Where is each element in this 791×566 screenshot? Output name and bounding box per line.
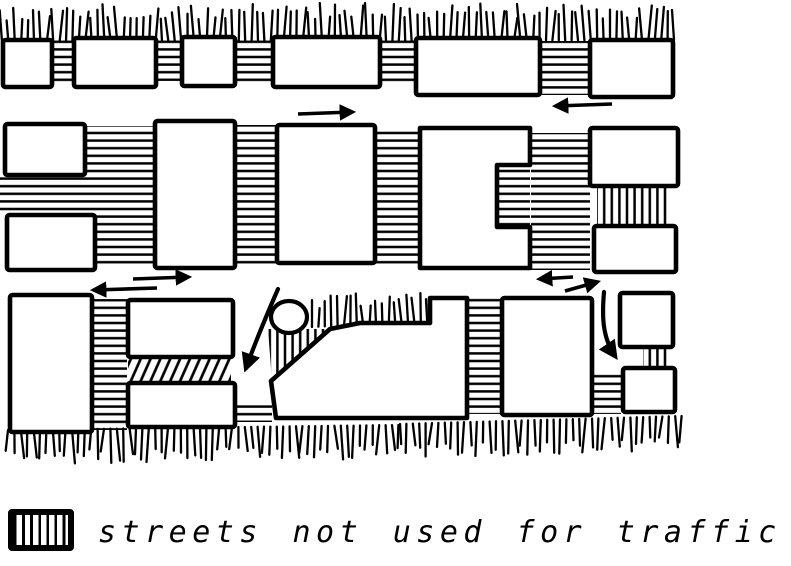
turning-traffic-arrow xyxy=(603,292,615,356)
city-block xyxy=(502,298,592,415)
hatched-street xyxy=(542,41,590,95)
hatched-street xyxy=(381,39,416,86)
hatched-street xyxy=(375,128,420,267)
hatched-street xyxy=(236,38,272,85)
city-block xyxy=(590,40,673,97)
city-block xyxy=(273,37,380,87)
hatched-street xyxy=(531,133,590,270)
city-block xyxy=(5,124,85,175)
roundabout-circle xyxy=(271,301,307,333)
traffic-direction-arrow xyxy=(540,277,573,279)
hatched-street xyxy=(53,40,74,84)
hatched-street xyxy=(85,126,155,175)
city-block xyxy=(10,295,92,432)
traffic-direction-arrow xyxy=(565,282,597,291)
traffic-direction-arrow xyxy=(556,104,612,106)
hatched-street xyxy=(597,187,667,226)
hatched-street xyxy=(95,215,155,268)
city-block xyxy=(277,125,375,263)
city-block xyxy=(182,37,235,86)
city-block xyxy=(620,293,673,347)
legend: streets not used for traffic xyxy=(8,509,782,551)
legend-swatch-hatched-street xyxy=(8,509,74,551)
hatched-street xyxy=(235,125,277,266)
hatched-street xyxy=(468,298,500,414)
city-block xyxy=(594,226,676,272)
street-edge-hatching xyxy=(400,416,682,457)
legend-label: streets not used for traffic xyxy=(98,511,782,550)
hatched-street xyxy=(643,347,671,368)
diagram-canvas xyxy=(0,0,791,505)
city-block xyxy=(623,368,675,412)
city-block xyxy=(128,300,233,357)
hatched-street xyxy=(497,165,530,227)
traffic-direction-arrow xyxy=(298,112,352,114)
traffic-direction-arrow xyxy=(133,277,188,279)
figure: streets not used for traffic xyxy=(0,0,791,566)
city-block xyxy=(128,383,235,427)
city-block xyxy=(3,40,52,87)
city-block xyxy=(7,215,95,270)
hatched-street xyxy=(237,403,272,422)
traffic-direction-arrow xyxy=(94,288,157,290)
city-block xyxy=(155,121,235,268)
hatched-street xyxy=(93,299,127,430)
city-block xyxy=(416,38,540,95)
city-block xyxy=(590,128,678,186)
hatched-street xyxy=(0,175,155,215)
hatched-street xyxy=(593,373,621,414)
hatched-street xyxy=(156,40,181,81)
hatched-street xyxy=(128,358,231,381)
city-block xyxy=(74,38,156,87)
